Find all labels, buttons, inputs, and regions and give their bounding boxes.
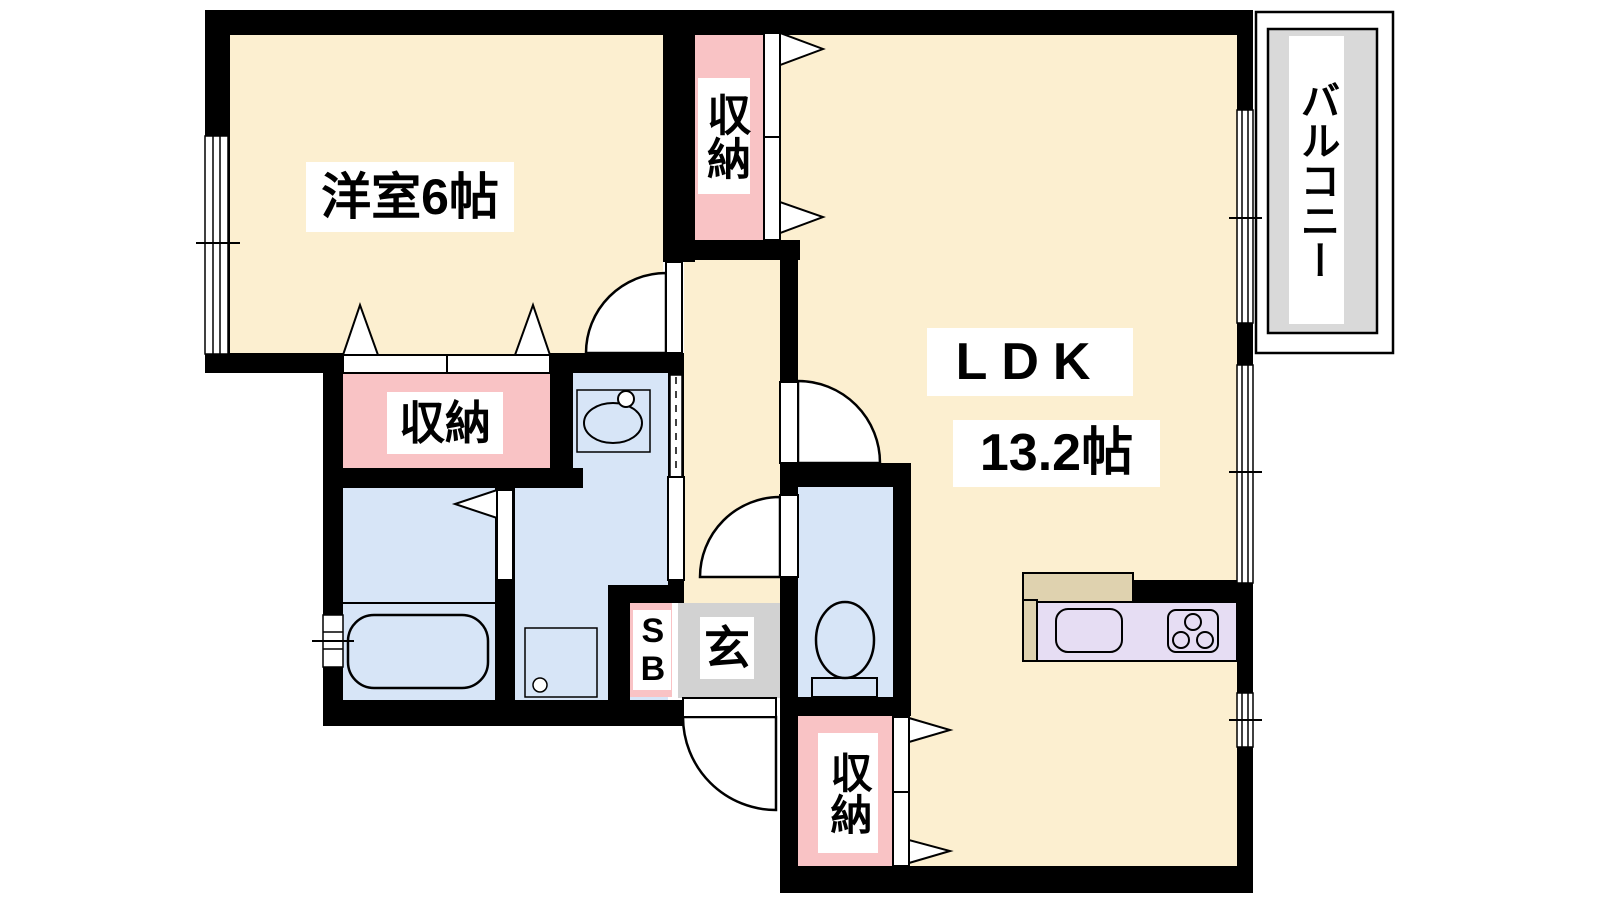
label-ldk: LDK xyxy=(927,328,1133,396)
wall-western-closet-top xyxy=(663,10,695,262)
door-leaf-toilet xyxy=(780,495,798,577)
label-genkan: 玄 xyxy=(700,617,754,679)
wall-kitchen-back xyxy=(1133,580,1237,602)
label-balcony: バルコニー xyxy=(1289,36,1344,324)
window-western-left xyxy=(205,136,228,354)
wall-bottom-left xyxy=(323,700,683,726)
label-ldk-size: 13.2帖 xyxy=(953,420,1160,487)
door-arc-entrance xyxy=(683,717,776,810)
label-western-room: 洋室6帖 xyxy=(306,162,514,232)
kitchen-counter-end xyxy=(1023,573,1133,602)
wall-hall-ldk-lower xyxy=(780,573,798,697)
door-leaf-entrance xyxy=(683,698,776,717)
wall-under-closet-mid xyxy=(323,468,583,488)
door-bath xyxy=(497,490,513,580)
wall-under-closet-top xyxy=(663,240,800,260)
door-leaf-western xyxy=(666,262,682,353)
kitchen-counter-side xyxy=(1023,600,1037,661)
wall-closet-bottom-left xyxy=(780,697,798,893)
washbasin-faucet xyxy=(618,391,634,407)
label-closet-mid: 収納 xyxy=(387,392,503,454)
wall-toilet-top xyxy=(780,463,911,487)
window-balcony xyxy=(1237,110,1253,323)
label-closet-bottom: 収納 xyxy=(818,733,878,853)
wall-hall-ldk-upper xyxy=(780,260,798,382)
wall-shoebox-left xyxy=(608,585,630,700)
wall-western-bottom-left xyxy=(205,353,343,373)
window-ldk-mid xyxy=(1237,365,1253,583)
door-leaf-ldk xyxy=(780,382,798,463)
label-shoebox: SB xyxy=(633,610,671,690)
label-closet-top: 収納 xyxy=(698,78,750,194)
wall-top xyxy=(205,10,1253,35)
toilet-tank xyxy=(812,678,877,697)
wall-toilet-bottom xyxy=(780,697,911,716)
wall-toilet-right xyxy=(893,463,911,716)
toilet-bowl xyxy=(816,602,874,678)
wall-bottom-right xyxy=(780,866,1253,893)
bathroom-floor xyxy=(343,488,495,700)
washer-pan-drain xyxy=(533,678,547,692)
door-panel-washroom xyxy=(668,477,684,580)
floorplan-page: 洋室6帖収納収納収納LDK13.2帖バルコニー玄SB xyxy=(0,0,1600,900)
floorplan-svg xyxy=(0,0,1600,900)
